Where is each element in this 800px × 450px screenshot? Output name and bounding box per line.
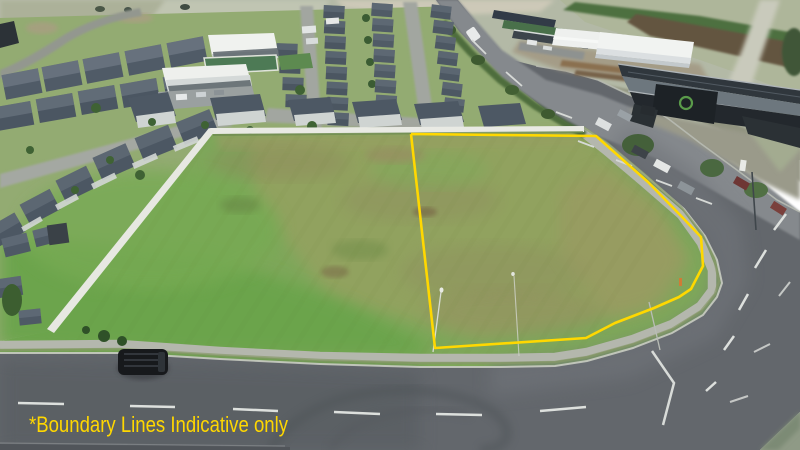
svg-text:*Boundary Lines Indicative onl: *Boundary Lines Indicative only bbox=[29, 412, 288, 437]
